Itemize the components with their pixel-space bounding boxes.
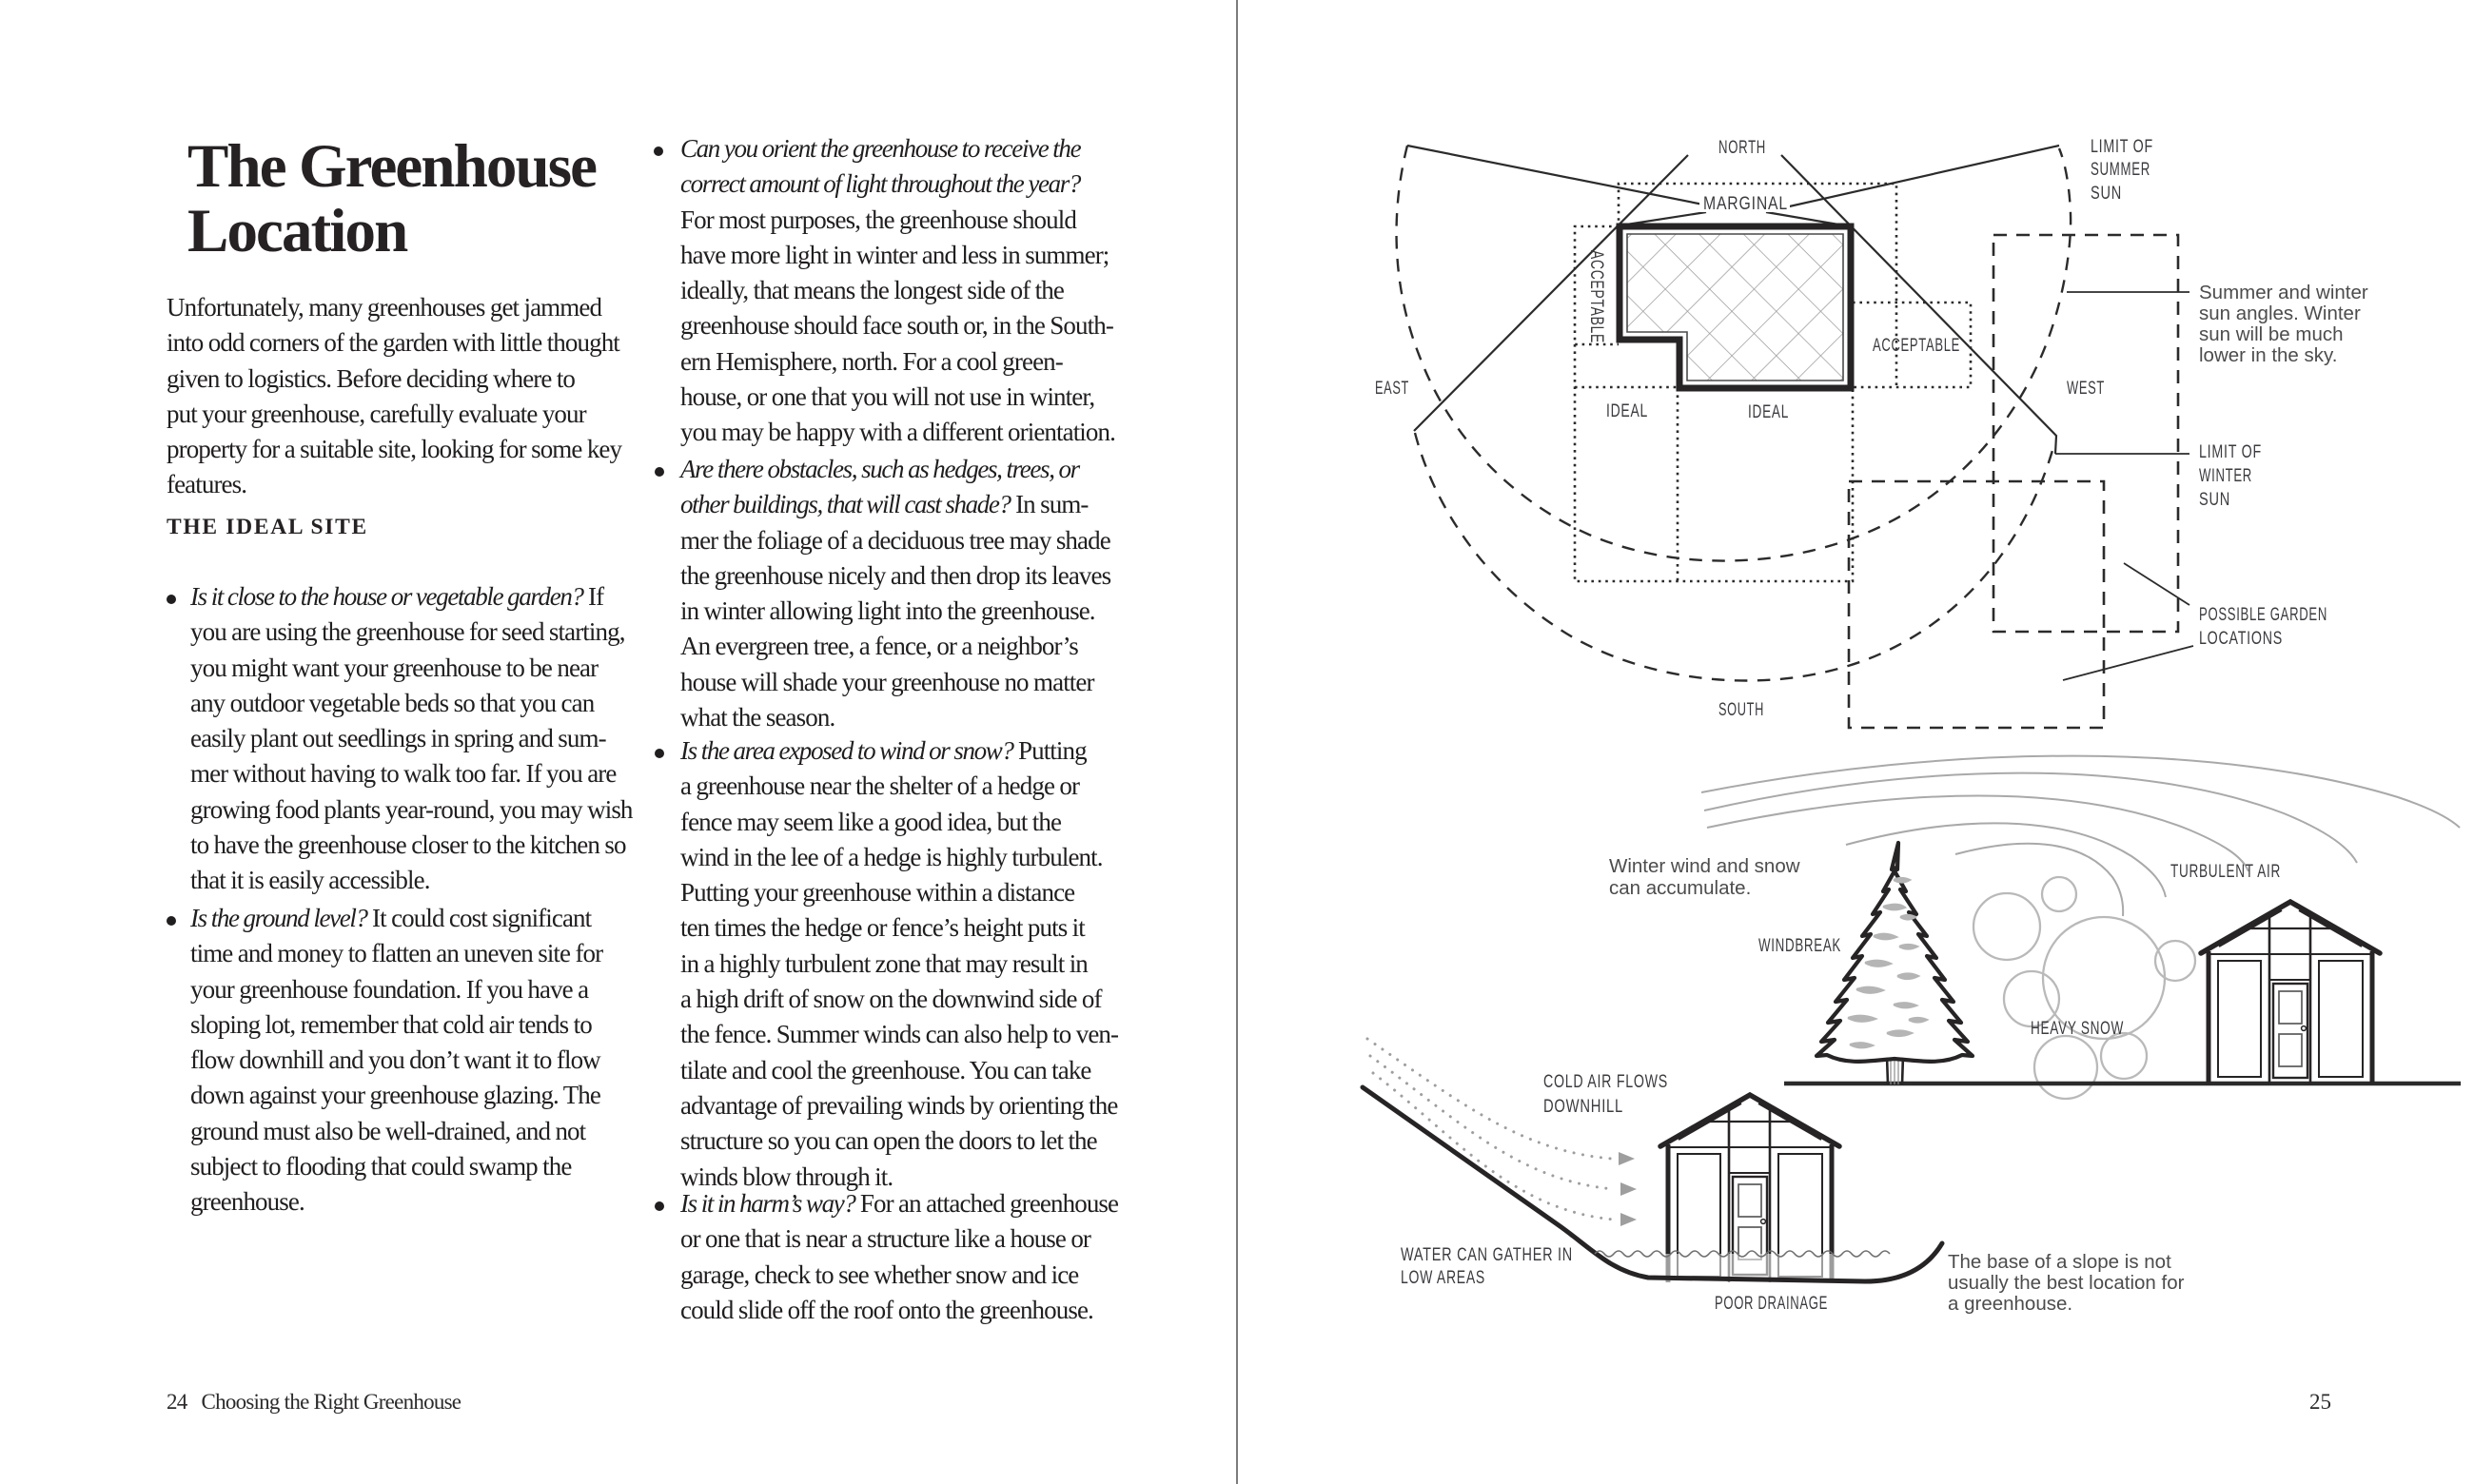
svg-text:EAST: EAST (1375, 379, 1409, 399)
svg-text:a greenhouse.: a greenhouse. (1948, 1293, 2072, 1315)
svg-text:IDEAL: IDEAL (1606, 401, 1648, 421)
svg-text:POOR DRAINAGE: POOR DRAINAGE (1715, 1293, 1828, 1314)
svg-text:LIMIT OF: LIMIT OF (2199, 442, 2262, 462)
svg-text:COLD AIR FLOWS: COLD AIR FLOWS (1543, 1071, 1668, 1092)
svg-text:sun will be much: sun will be much (2199, 323, 2344, 345)
svg-text:POSSIBLE GARDEN: POSSIBLE GARDEN (2199, 605, 2327, 625)
svg-text:LIMIT OF: LIMIT OF (2091, 137, 2153, 157)
svg-text:Summer and winter: Summer and winter (2199, 282, 2368, 303)
svg-text:The base of a slope is not: The base of a slope is not (1948, 1251, 2171, 1273)
svg-text:IDEAL: IDEAL (1748, 402, 1789, 422)
svg-text:can accumulate.: can accumulate. (1609, 877, 1751, 899)
svg-text:SUN: SUN (2199, 490, 2230, 510)
svg-text:HEAVY SNOW: HEAVY SNOW (2031, 1018, 2124, 1039)
svg-text:TURBULENT AIR: TURBULENT AIR (2170, 861, 2281, 882)
svg-text:WEST: WEST (2067, 379, 2105, 399)
svg-text:NORTH: NORTH (1718, 138, 1766, 158)
svg-text:SOUTH: SOUTH (1718, 700, 1764, 720)
svg-text:WINTER: WINTER (2199, 466, 2252, 486)
svg-text:SUN: SUN (2091, 184, 2122, 204)
svg-text:lower in the sky.: lower in the sky. (2199, 344, 2337, 366)
svg-text:DOWNHILL: DOWNHILL (1543, 1096, 1623, 1117)
svg-text:MARGINAL: MARGINAL (1703, 194, 1788, 214)
svg-text:Winter wind and snow: Winter wind and snow (1609, 855, 1800, 877)
svg-text:WATER CAN GATHER IN: WATER CAN GATHER IN (1401, 1244, 1573, 1265)
svg-text:sun angles. Winter: sun angles. Winter (2199, 303, 2361, 324)
svg-text:LOCATIONS: LOCATIONS (2199, 629, 2283, 649)
svg-text:usually the best location for: usually the best location for (1948, 1272, 2185, 1294)
svg-text:ACCEPTABLE: ACCEPTABLE (1586, 250, 1606, 343)
svg-text:SUMMER: SUMMER (2091, 160, 2150, 180)
svg-text:WINDBREAK: WINDBREAK (1758, 935, 1841, 956)
svg-text:ACCEPTABLE: ACCEPTABLE (1873, 336, 1960, 356)
svg-text:LOW AREAS: LOW AREAS (1401, 1267, 1485, 1288)
